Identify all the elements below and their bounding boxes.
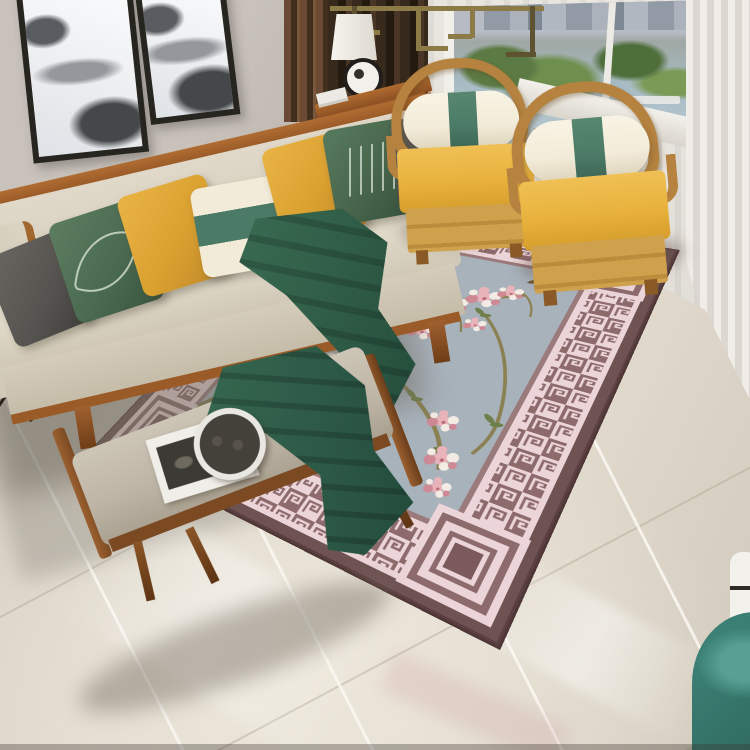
living-room-photo xyxy=(0,0,750,750)
armchair-right xyxy=(502,73,703,319)
bench-leg xyxy=(133,541,155,601)
chair-foot xyxy=(644,279,658,295)
bolster-green-band xyxy=(572,117,608,182)
bench-leg xyxy=(185,526,219,584)
sofa-leg xyxy=(428,320,450,364)
table-lamp-shade xyxy=(331,14,377,60)
ink-wash-artwork-right xyxy=(134,0,241,125)
chair-foot xyxy=(416,250,429,265)
bolster-green-band xyxy=(448,91,479,150)
round-decor-center xyxy=(354,69,364,79)
ink-wash-artwork-left xyxy=(15,0,149,164)
image-bottom-edge xyxy=(0,744,750,750)
chair-foot xyxy=(543,290,557,306)
